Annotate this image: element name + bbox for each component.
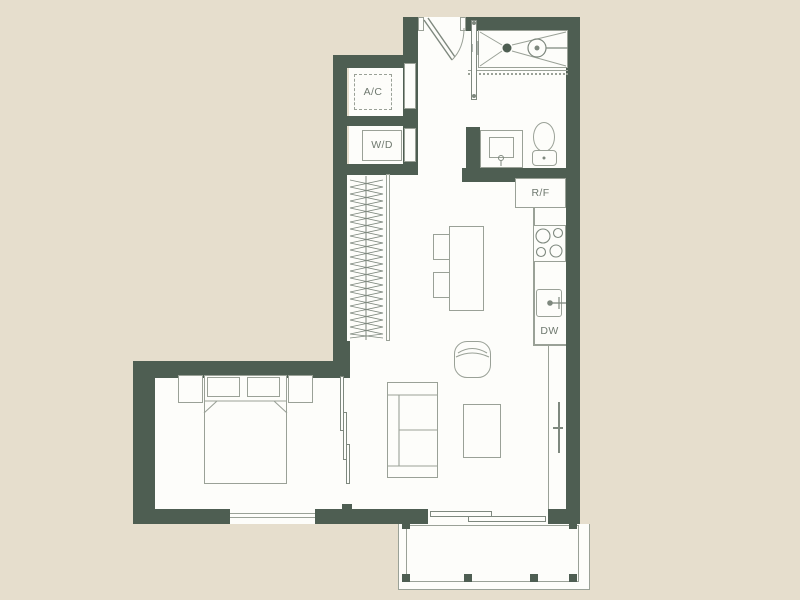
pillow-right bbox=[247, 377, 280, 397]
dw-label: DW bbox=[533, 323, 566, 339]
wall-right bbox=[566, 17, 580, 524]
right-window-tick bbox=[553, 427, 563, 429]
wall-slider-post bbox=[342, 504, 352, 510]
shower-pan bbox=[478, 30, 568, 68]
toilet-bowl bbox=[533, 122, 555, 152]
wall-bedroom-left bbox=[133, 361, 155, 524]
toilet-tank bbox=[532, 150, 557, 166]
ac-label: A/C bbox=[354, 74, 392, 110]
island-stool-1 bbox=[433, 234, 450, 260]
wall-bathroom-left bbox=[466, 127, 480, 168]
balcony-railing bbox=[406, 525, 579, 582]
bedroom-slider-panel-3 bbox=[346, 444, 350, 484]
nightstand-right bbox=[288, 375, 313, 403]
bedroom-window-line-1 bbox=[230, 513, 315, 514]
bedroom-window-line-2 bbox=[230, 517, 315, 518]
balcony-post-br bbox=[569, 574, 577, 582]
patio-slider-panel-2 bbox=[468, 516, 546, 522]
shower-curb-dotted bbox=[468, 73, 568, 75]
entry-door-opening bbox=[424, 17, 460, 31]
island-stool-2 bbox=[433, 272, 450, 298]
entry-door-jamb-left bbox=[418, 17, 424, 31]
sofa bbox=[387, 382, 438, 478]
kitchen-sink bbox=[536, 289, 562, 317]
coffee-table bbox=[463, 404, 501, 458]
balcony-post-tr bbox=[569, 521, 577, 529]
kitchen-island bbox=[449, 226, 484, 311]
balcony-post-bl bbox=[402, 574, 410, 582]
wall-wd-bottom bbox=[346, 164, 418, 175]
ac-closet-door bbox=[404, 63, 416, 109]
bathroom-glass-door bbox=[471, 20, 477, 100]
pillow-left bbox=[207, 377, 240, 397]
shower-glass-edge bbox=[468, 70, 568, 71]
right-glazing-line bbox=[548, 345, 549, 509]
rf-label: R/F bbox=[515, 178, 566, 208]
entry-door-jamb-right bbox=[460, 17, 466, 31]
wd-closet-door bbox=[404, 128, 416, 162]
vanity-sink bbox=[489, 137, 514, 158]
balcony-post-tl bbox=[402, 521, 410, 529]
armchair bbox=[454, 341, 491, 378]
nightstand-left bbox=[178, 375, 203, 403]
balcony-post-mid-1 bbox=[464, 574, 472, 582]
closet-front-track bbox=[386, 174, 390, 341]
wall-bottom-west bbox=[133, 509, 230, 524]
wall-left-upper bbox=[333, 55, 347, 341]
counter-bottom-edge bbox=[533, 344, 566, 346]
wall-ac-wd-divider bbox=[346, 116, 404, 126]
stove bbox=[533, 225, 566, 262]
wall-top bbox=[460, 17, 580, 31]
floor-plan: A/C W/D R/F DW bbox=[0, 0, 800, 600]
wall-bottom-mid bbox=[315, 509, 428, 524]
wd-label: W/D bbox=[362, 130, 402, 161]
balcony-post-mid-2 bbox=[530, 574, 538, 582]
